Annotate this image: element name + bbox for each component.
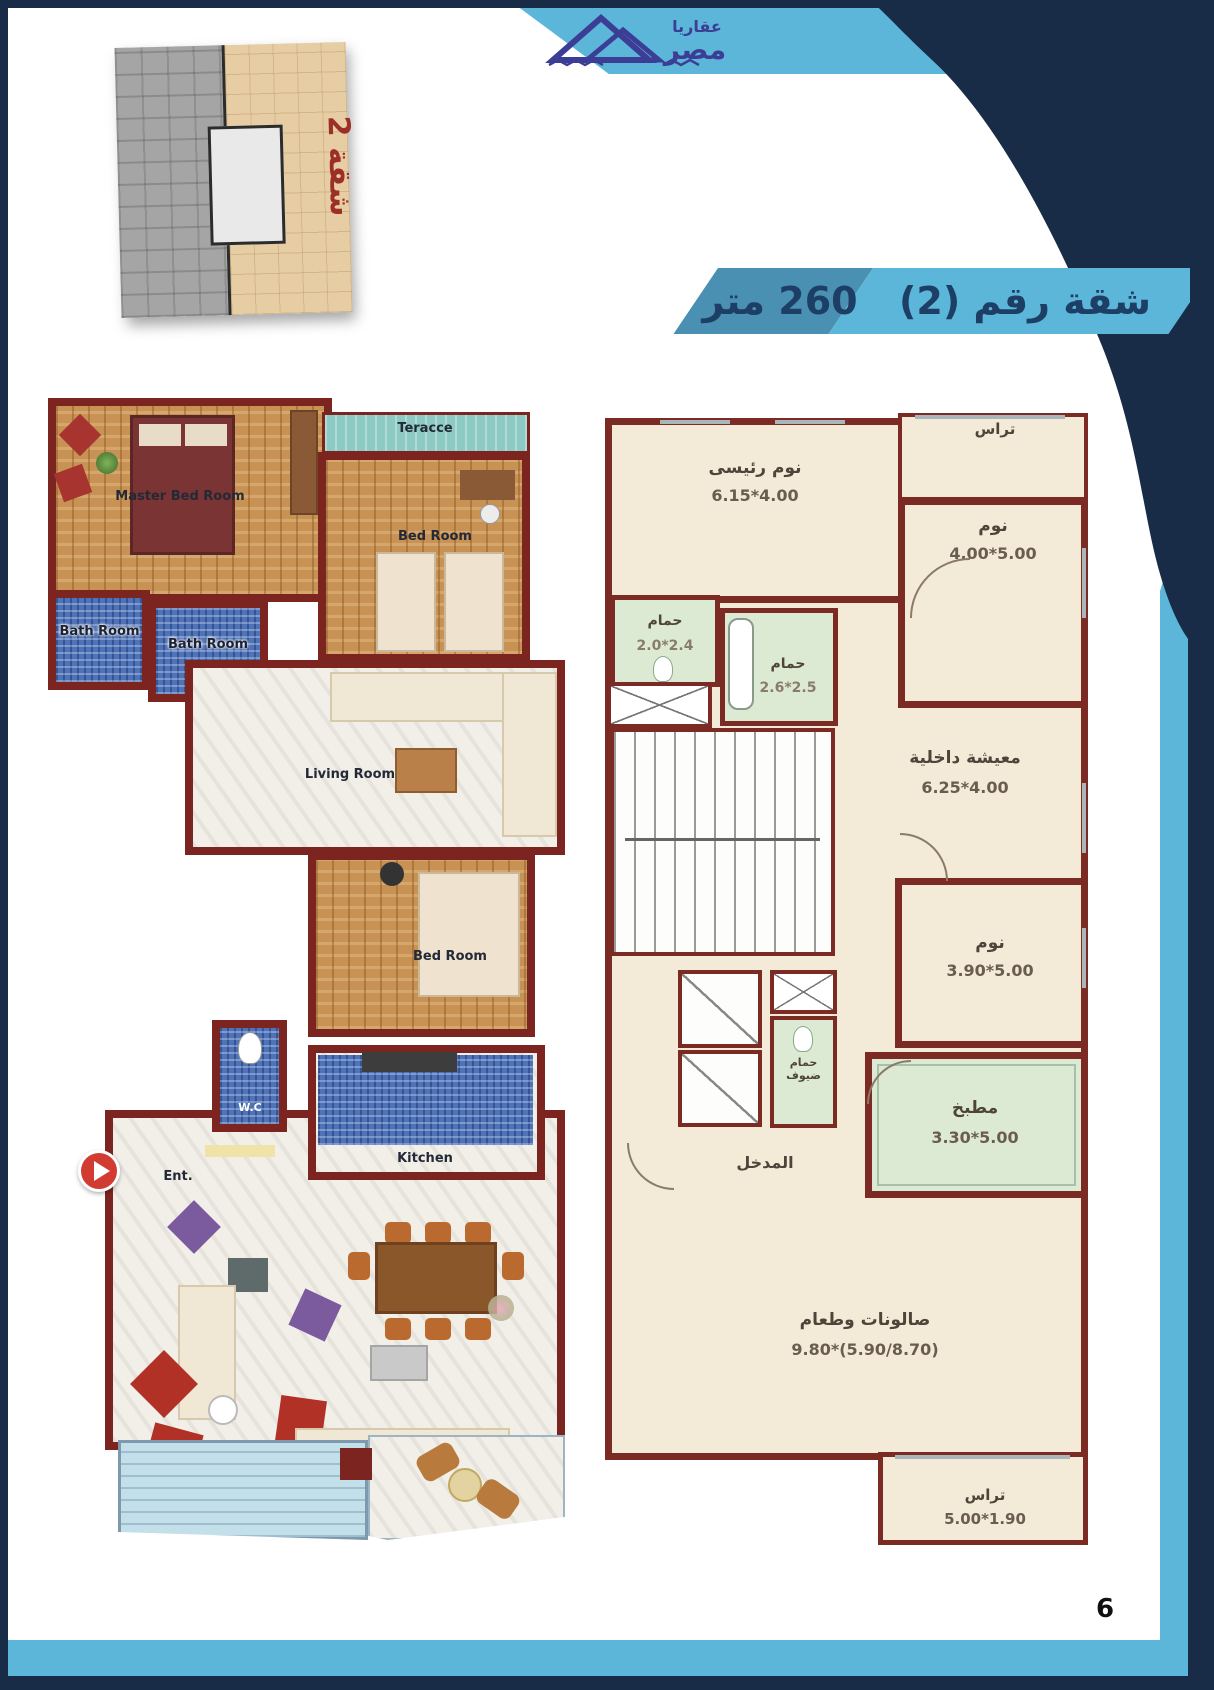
room-label: Bath Room	[52, 625, 147, 639]
room-label: مطبخ	[895, 1098, 1055, 1118]
room-label: W.C	[220, 1102, 280, 1114]
room-dims: 4.00*5.00	[913, 544, 1073, 563]
terrace-balcony	[118, 1440, 368, 1540]
dining-chair	[385, 1222, 411, 1244]
round-table	[208, 1395, 238, 1425]
window	[895, 1455, 1070, 1459]
page-number: 6	[1085, 1594, 1125, 1624]
dining-chair	[385, 1318, 411, 1340]
chair	[480, 504, 500, 524]
room-label: Kitchen	[375, 1152, 475, 1166]
room-dims: 3.90*5.00	[915, 961, 1065, 980]
window	[775, 420, 845, 424]
ceiling-fan	[380, 862, 404, 886]
appliances	[362, 1052, 457, 1072]
bottom-border	[0, 1676, 1214, 1690]
room-label: حمام	[743, 656, 833, 672]
window	[1082, 548, 1086, 618]
doormat	[205, 1145, 275, 1157]
page-title: شقة رقم (2)	[880, 273, 1170, 329]
shaft	[770, 970, 837, 1014]
plant	[488, 1295, 514, 1321]
room-label: Teracce	[350, 422, 500, 436]
logo-word-bottom: مصر	[662, 33, 726, 66]
room-label: Bath Room	[158, 638, 258, 652]
dining-chair	[425, 1222, 451, 1244]
plant	[96, 452, 118, 474]
room-label: معيشة داخلية	[875, 748, 1055, 768]
elevator	[678, 1050, 762, 1127]
room-label: صالونات وطعام	[765, 1310, 965, 1330]
staircase	[610, 728, 835, 956]
room-label: Master Bed Room	[100, 490, 260, 504]
bed	[376, 552, 436, 652]
sofa	[502, 672, 557, 837]
room-label: المدخل	[715, 1153, 815, 1172]
room-label: نوم	[915, 933, 1065, 953]
room-dims: 5.00*1.90	[910, 1510, 1060, 1528]
room-label: Living Room	[290, 768, 410, 782]
bed	[418, 872, 520, 997]
room-dims: 6.25*4.00	[875, 778, 1055, 797]
tv-table	[370, 1345, 428, 1381]
toilet	[238, 1032, 262, 1064]
room-label: نوم رئيسى	[675, 458, 835, 478]
room-dims: 2.6*2.5	[743, 680, 833, 696]
window	[1082, 928, 1086, 988]
brochure-page: عقاريا مصر شقة رقم (2) 260 متر شقة 2 Mas…	[0, 0, 1214, 1690]
room-master	[605, 418, 905, 603]
toilet	[793, 1026, 813, 1052]
dining-chair	[425, 1318, 451, 1340]
room-label: Bed Room	[395, 950, 505, 964]
room-bathroom-left	[48, 590, 150, 690]
wall-stub	[340, 1448, 372, 1480]
area-label: 260 متر	[680, 273, 880, 329]
desk	[460, 470, 515, 500]
title-banner: شقة رقم (2) 260 متر	[650, 268, 1190, 334]
room-dims: 3.30*5.00	[895, 1128, 1055, 1147]
room-label: Bed Room	[380, 530, 490, 544]
toilet	[653, 656, 673, 682]
dining-chair	[465, 1318, 491, 1340]
bed	[130, 415, 235, 555]
dining-table	[375, 1242, 497, 1314]
room-label: تراس	[910, 1486, 1060, 1504]
dining-chair	[502, 1252, 524, 1280]
room-dims: 9.80*(5.90/8.70)	[765, 1340, 965, 1359]
wardrobe	[290, 410, 318, 515]
window	[660, 420, 730, 424]
room-label: حمام	[615, 613, 715, 629]
dining-chair	[348, 1252, 370, 1280]
bed	[444, 552, 504, 652]
room-dims: 2.0*2.4	[615, 638, 715, 654]
room-label: حمام ضيوف	[772, 1056, 835, 1082]
logo-icon: عقاريا مصر	[545, 12, 755, 68]
elevator	[678, 970, 762, 1048]
schematic-floor-plan: نوم رئيسى 6.15*4.00 تراس نوم 4.00*5.00 ح…	[565, 398, 1093, 1550]
room-dims: 6.15*4.00	[675, 486, 835, 505]
window	[1082, 783, 1086, 853]
building-section-inset: شقة 2	[115, 42, 350, 318]
dining-chair	[465, 1222, 491, 1244]
room-label: نوم	[913, 516, 1073, 536]
play-icon	[78, 1150, 120, 1192]
left-border	[0, 0, 8, 1690]
stair-rail	[625, 838, 820, 841]
window	[915, 415, 1065, 419]
room-label: تراس	[920, 420, 1070, 438]
shaft	[607, 682, 712, 728]
inset-apartment-label: شقة 2	[238, 138, 359, 219]
rendered-floor-plan: Master Bed Room Teracce Bed Room Bath Ro…	[40, 390, 565, 1560]
bottom-frame-band	[8, 1640, 1190, 1676]
room-label: Ent.	[148, 1170, 208, 1184]
